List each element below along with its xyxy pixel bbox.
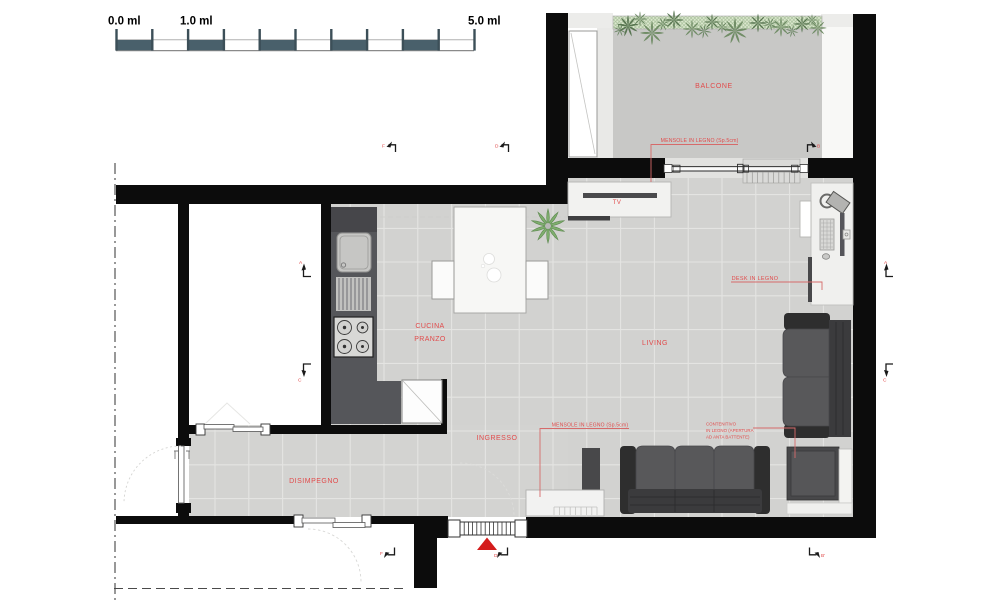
svg-text:F: F [380,551,383,557]
svg-text:B': B' [821,553,825,559]
svg-text:MENSOLE IN LEGNO (Sp.5cm): MENSOLE IN LEGNO (Sp.5cm) [661,138,739,144]
svg-text:CONTENITIVO: CONTENITIVO [706,422,737,427]
svg-text:TV: TV [613,200,621,206]
svg-text:C: C [298,378,302,384]
svg-text:D: D [495,144,499,150]
svg-text:C: C [883,378,887,384]
svg-text:LIVING: LIVING [642,340,668,347]
svg-text:AD ANTA BATTENTE): AD ANTA BATTENTE) [706,435,750,440]
svg-text:5.0 ml: 5.0 ml [468,16,501,28]
svg-text:1.0 ml: 1.0 ml [180,16,213,28]
svg-text:B: B [817,144,820,150]
svg-text:PRANZO: PRANZO [414,336,446,343]
svg-text:DISIMPEGNO: DISIMPEGNO [289,478,339,485]
svg-text:BALCONE: BALCONE [695,83,733,90]
svg-text:INGRESSO: INGRESSO [477,435,518,442]
svg-text:DESK IN LEGNO: DESK IN LEGNO [732,276,779,282]
svg-text:MENSOLE IN LEGNO (Sp.5cm): MENSOLE IN LEGNO (Sp.5cm) [552,423,629,429]
svg-text:IN LEGNO (APERTURA: IN LEGNO (APERTURA [706,428,754,433]
svg-text:CUCINA: CUCINA [415,323,444,330]
svg-text:0.0 ml: 0.0 ml [108,16,141,28]
svg-text:F: F [382,144,385,150]
